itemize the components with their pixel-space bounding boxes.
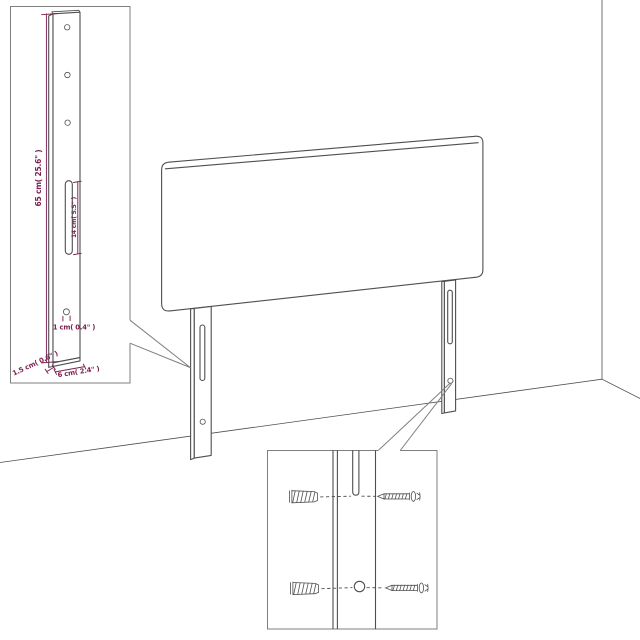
screw-head xyxy=(411,492,415,502)
post-side-face xyxy=(49,14,53,368)
left-leg xyxy=(191,306,212,459)
callout-lines-hardware-detail xyxy=(378,383,451,450)
headboard-panel xyxy=(162,136,483,311)
leg-detail-inset: 65 cm( 25.6" ) 14 cm( 5.5" ) 1 cm( 0.4" … xyxy=(11,7,131,384)
left-leg-side-face xyxy=(191,308,195,459)
headboard-front-face xyxy=(162,136,483,311)
post-front-face xyxy=(53,12,80,363)
dim-hole-diameter-label: 1 cm( 0.4" ) xyxy=(53,323,95,331)
right-leg-front-face xyxy=(444,280,455,413)
floor-line-right xyxy=(602,379,640,398)
dim-slot-length-label: 14 cm( 5.5" ) xyxy=(71,197,78,239)
callout-lines-leg-detail xyxy=(130,320,190,367)
left-leg-front-face xyxy=(194,306,211,458)
assembly-diagram-canvas: 65 cm( 25.6" ) 14 cm( 5.5" ) 1 cm( 0.4" … xyxy=(0,0,640,640)
hardware-detail-inset xyxy=(268,451,438,630)
dim-leg-height-label: 65 cm( 25.6" ) xyxy=(34,150,43,207)
detail-leg-post xyxy=(49,10,80,367)
assembly-diagram: 65 cm( 25.6" ) 14 cm( 5.5" ) 1 cm( 0.4" … xyxy=(0,0,640,640)
